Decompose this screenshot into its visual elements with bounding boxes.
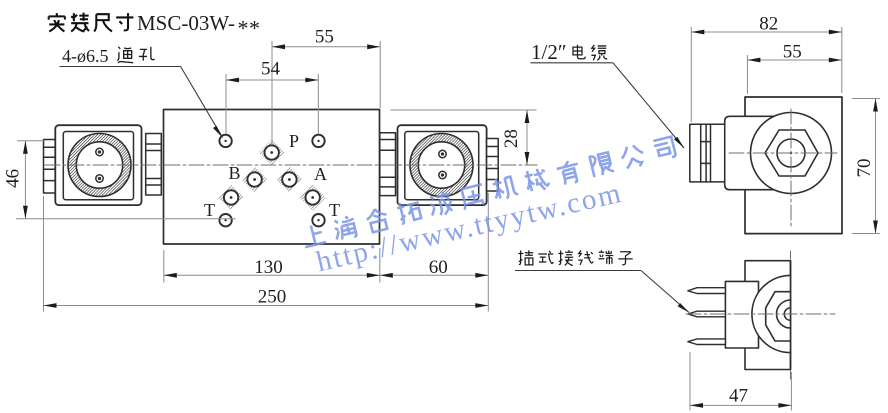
svg-text:47: 47: [729, 386, 748, 407]
svg-text:A: A: [314, 164, 327, 184]
svg-text:T: T: [329, 200, 340, 220]
svg-text:B: B: [228, 163, 240, 183]
svg-text:28: 28: [501, 129, 522, 148]
svg-text:MSC-03W-: MSC-03W-: [137, 11, 235, 35]
svg-text:T: T: [204, 200, 215, 220]
svg-text:4-ø6.5: 4-ø6.5: [62, 46, 109, 66]
svg-text:1/2″: 1/2″: [531, 40, 567, 64]
svg-text:P: P: [289, 131, 299, 151]
svg-text:54: 54: [261, 59, 281, 80]
svg-text:46: 46: [3, 169, 24, 188]
svg-text:82: 82: [759, 14, 778, 35]
svg-text:70: 70: [854, 159, 875, 178]
svg-text:250: 250: [258, 287, 287, 308]
svg-text:55: 55: [315, 27, 334, 48]
svg-text:130: 130: [254, 257, 283, 278]
svg-text:55: 55: [783, 42, 802, 63]
svg-text:**: **: [238, 16, 261, 41]
svg-text:60: 60: [429, 257, 448, 278]
